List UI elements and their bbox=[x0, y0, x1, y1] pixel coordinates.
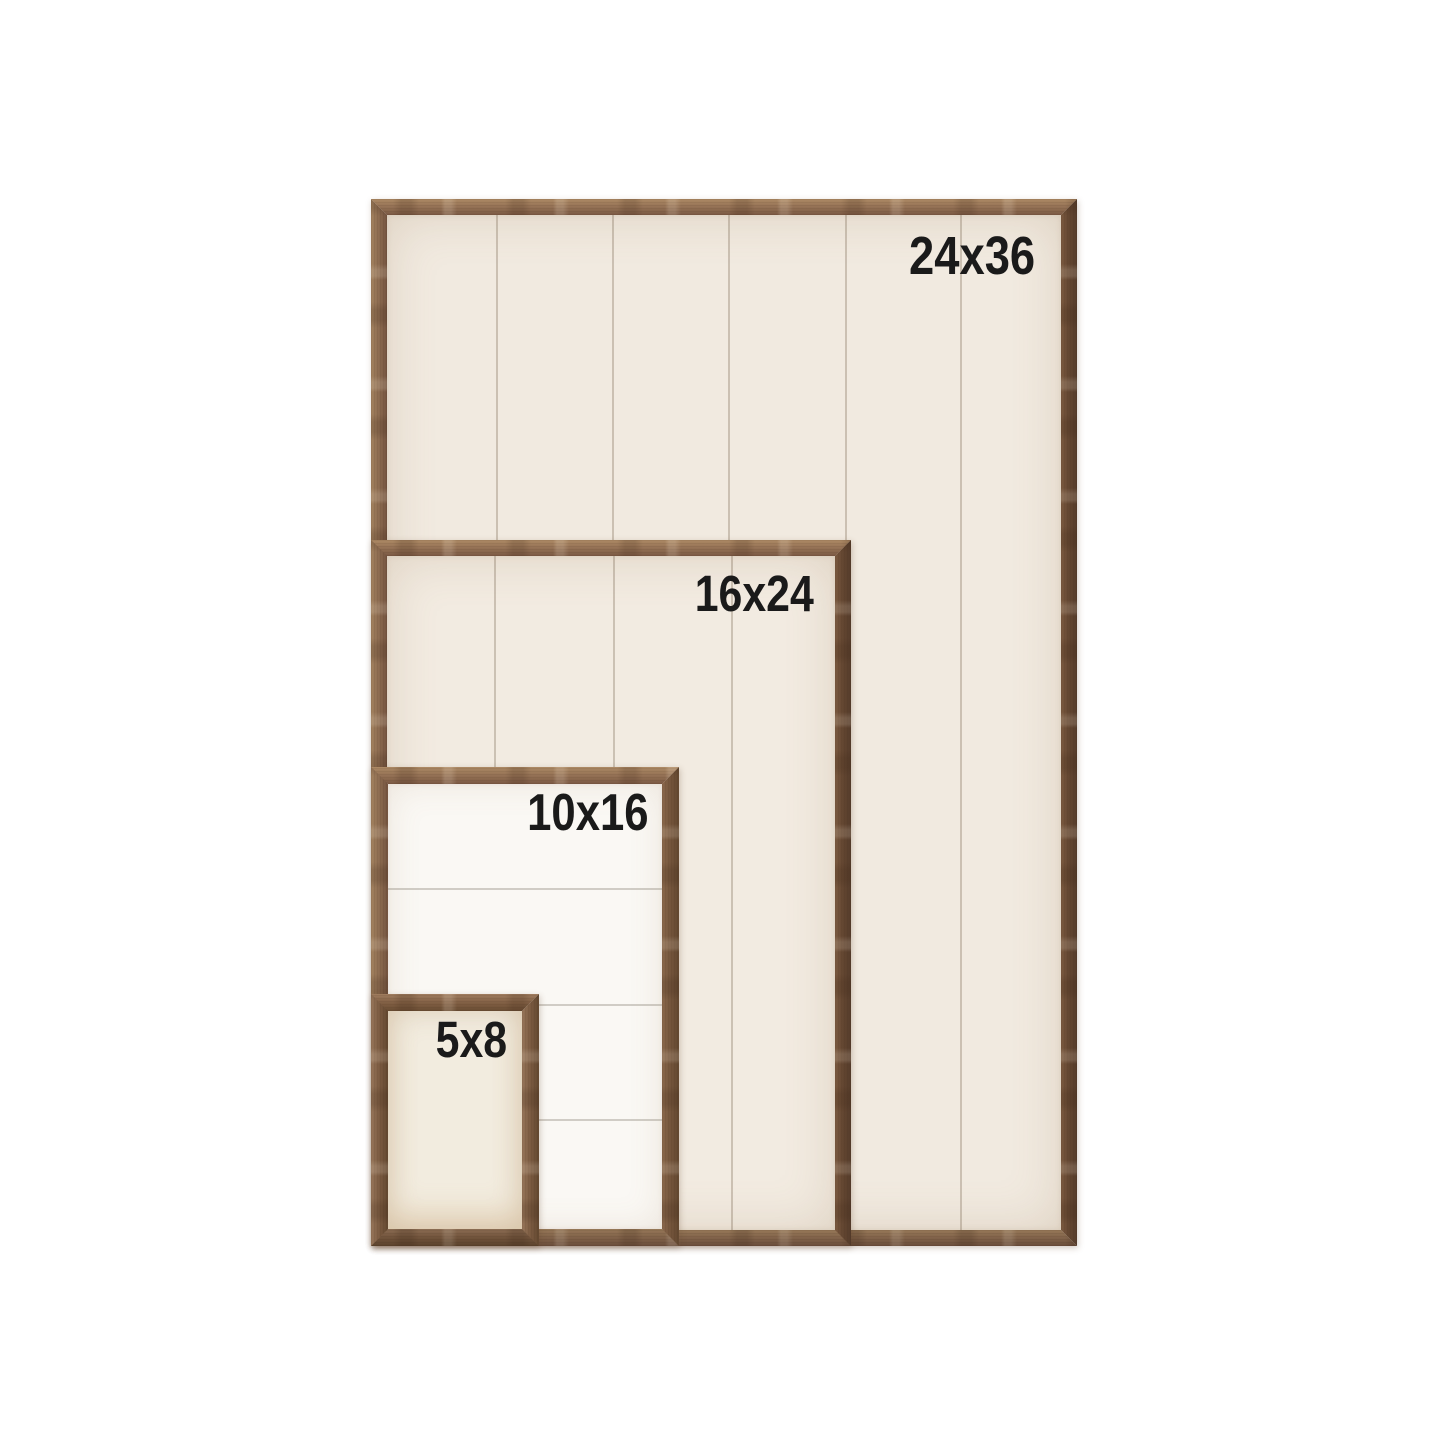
size-label-10x16: 10x16 bbox=[528, 787, 649, 839]
wood-border-top bbox=[371, 540, 851, 556]
frame-5x8: 5x8 bbox=[371, 994, 539, 1246]
size-label-5x8: 5x8 bbox=[436, 1014, 507, 1065]
size-label-24x36: 24x36 bbox=[909, 229, 1035, 283]
size-label-16x24: 16x24 bbox=[695, 568, 814, 619]
plank-seam bbox=[388, 888, 662, 890]
wood-border-right bbox=[1061, 199, 1077, 1246]
plank-seam bbox=[731, 556, 733, 1230]
wood-border-right bbox=[662, 767, 679, 1246]
plank-seam bbox=[960, 215, 962, 1230]
wood-border-bottom bbox=[371, 1229, 539, 1246]
wood-border-right bbox=[522, 994, 539, 1246]
wood-border-right bbox=[835, 540, 851, 1246]
frame-5x8-panel: 5x8 bbox=[388, 1011, 522, 1229]
wood-border-top bbox=[371, 994, 539, 1011]
wood-border-top bbox=[371, 199, 1077, 215]
wood-border-left bbox=[371, 994, 388, 1246]
size-comparison-photo: 24x36 16x24 10x16 5x bbox=[0, 0, 1445, 1445]
wood-border-top bbox=[371, 767, 679, 784]
